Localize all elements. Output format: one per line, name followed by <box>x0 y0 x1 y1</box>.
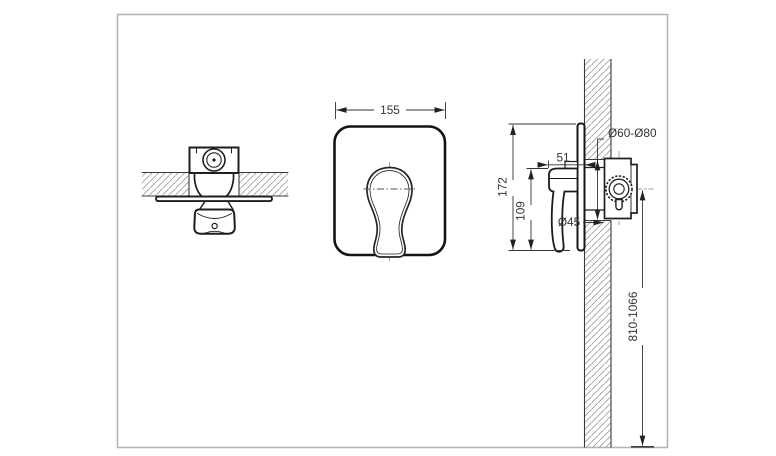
front-view: 155 <box>335 102 446 261</box>
dim-cartridge-label: Ø45 <box>558 215 581 229</box>
side-valve-body <box>605 159 638 219</box>
technical-drawing-page: 155 <box>0 0 776 456</box>
side-faceplate <box>578 124 585 251</box>
dim-handle-height-label: 109 <box>514 201 528 221</box>
dim-side-height-label: 172 <box>496 177 510 197</box>
drawing-canvas: 155 <box>0 0 776 456</box>
dim-wall-hole-label: Ø60-Ø80 <box>608 126 657 140</box>
top-view-faceplate <box>156 197 272 202</box>
valve-sleeve <box>584 168 605 211</box>
dim-front-width-label: 155 <box>380 103 400 117</box>
dim-install-height-label: 810-1066 <box>626 291 640 341</box>
side-wall-section <box>584 59 612 448</box>
diverter-keyhole <box>616 200 622 210</box>
dim-depth-label: 51 <box>556 151 569 165</box>
